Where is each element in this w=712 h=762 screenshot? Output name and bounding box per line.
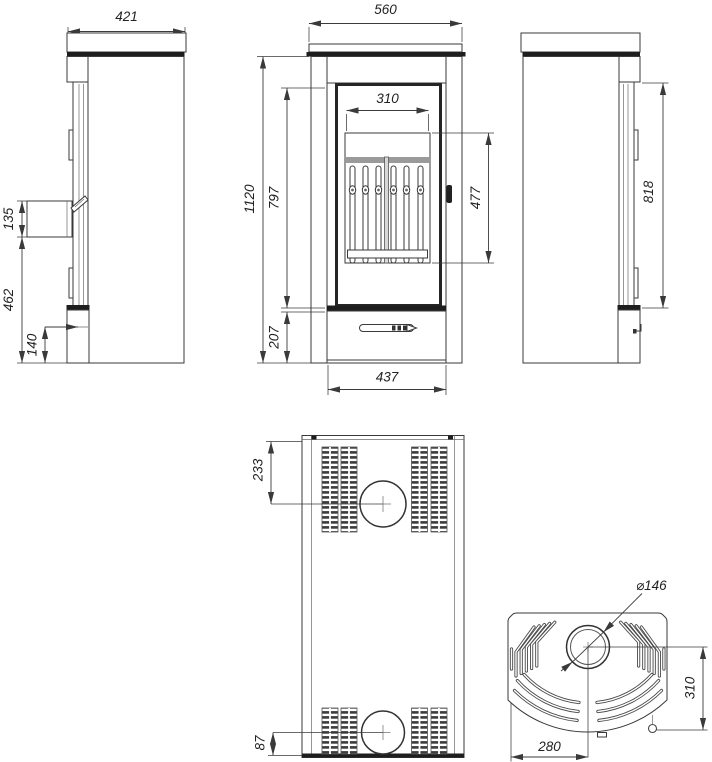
front-top-bracket bbox=[619, 57, 640, 83]
top-plate-front bbox=[309, 44, 462, 52]
ash-drawer-front bbox=[327, 311, 446, 360]
front-top-bracket bbox=[67, 57, 88, 83]
top-plate-side bbox=[521, 33, 640, 52]
eyelet-dot bbox=[419, 189, 422, 192]
eyelet-dot bbox=[364, 189, 367, 192]
dim-label-87: 87 bbox=[253, 735, 268, 751]
dim-label-310-top: 310 bbox=[683, 676, 698, 699]
dim-label-310: 310 bbox=[376, 91, 399, 106]
plinth-side bbox=[618, 310, 640, 363]
eyelet-dot bbox=[405, 189, 408, 192]
dim-label-280: 280 bbox=[537, 739, 561, 754]
eyelet-dot bbox=[351, 189, 354, 192]
dim-label-818: 818 bbox=[641, 180, 656, 203]
log-retainer-bar bbox=[348, 250, 428, 258]
left-side-view: 421 135 462 140 bbox=[1, 9, 186, 363]
dim-label-477: 477 bbox=[468, 186, 483, 209]
dim-label-diameter: ⌀146 bbox=[636, 578, 667, 593]
dim-label-437: 437 bbox=[376, 370, 399, 385]
door-hinge-upper bbox=[69, 130, 73, 160]
dim-label-1120: 1120 bbox=[242, 184, 257, 214]
ash-drawer-handle bbox=[360, 325, 417, 332]
grate-rod bbox=[418, 166, 423, 263]
dim-label-462: 462 bbox=[1, 288, 16, 311]
right-side-panel bbox=[446, 57, 462, 364]
dim-label-135: 135 bbox=[1, 207, 16, 230]
top-plate-side bbox=[67, 33, 186, 52]
decorative-grate bbox=[348, 157, 428, 263]
damper-lever-knob bbox=[633, 329, 637, 334]
dim-label-233: 233 bbox=[251, 458, 266, 482]
top-plate-edge-strip bbox=[67, 52, 185, 57]
grate-rod bbox=[376, 166, 381, 263]
door-hinge-lower bbox=[634, 268, 638, 298]
door-bottom-strip bbox=[327, 306, 446, 312]
rear-view: 233 87 bbox=[251, 436, 465, 758]
grate-center-divider bbox=[385, 157, 389, 263]
door-hinge-upper bbox=[634, 130, 638, 160]
stove-body-side bbox=[523, 57, 619, 364]
eyelet-dot bbox=[377, 189, 380, 192]
door-handle-front bbox=[447, 185, 453, 203]
drawer-handle-notch bbox=[398, 326, 402, 331]
grate-rod bbox=[404, 166, 409, 263]
dim-label-207: 207 bbox=[267, 326, 282, 350]
right-side-view: 818 bbox=[521, 33, 669, 363]
door-bottom-strip bbox=[67, 305, 90, 310]
drawer-handle-notch bbox=[392, 326, 396, 331]
corner-tick bbox=[312, 436, 317, 440]
stove-body-side bbox=[88, 57, 184, 364]
stove-dimension-drawing: 421 135 462 140 560 bbox=[0, 0, 712, 762]
handle-housing-box bbox=[27, 201, 72, 237]
front-view: 560 310 bbox=[242, 2, 494, 395]
dim-label-421: 421 bbox=[115, 9, 138, 24]
dim-label-797: 797 bbox=[267, 186, 282, 209]
top-plate-edge-strip bbox=[307, 52, 466, 57]
dim-label-140: 140 bbox=[25, 333, 40, 356]
air-control-knob bbox=[649, 725, 657, 733]
left-side-panel bbox=[311, 57, 327, 364]
plinth-side bbox=[67, 310, 89, 363]
top-plate-edge-strip bbox=[523, 52, 641, 57]
top-view: ⌀146 310 280 bbox=[508, 578, 708, 762]
grate-rod bbox=[350, 166, 355, 263]
grate-rod bbox=[363, 166, 368, 263]
eyelet-dot bbox=[392, 189, 395, 192]
door-profile bbox=[619, 82, 634, 308]
corner-tick bbox=[448, 436, 453, 440]
dim-label-560: 560 bbox=[374, 2, 397, 17]
grate-rod bbox=[391, 166, 396, 263]
drawer-handle-notch bbox=[403, 326, 407, 331]
drawing-canvas: 421 135 462 140 560 bbox=[0, 0, 712, 762]
door-bottom-strip bbox=[618, 305, 641, 310]
door-profile bbox=[73, 82, 88, 308]
front-center-tab bbox=[598, 733, 607, 738]
door-hinge-lower bbox=[69, 268, 73, 298]
